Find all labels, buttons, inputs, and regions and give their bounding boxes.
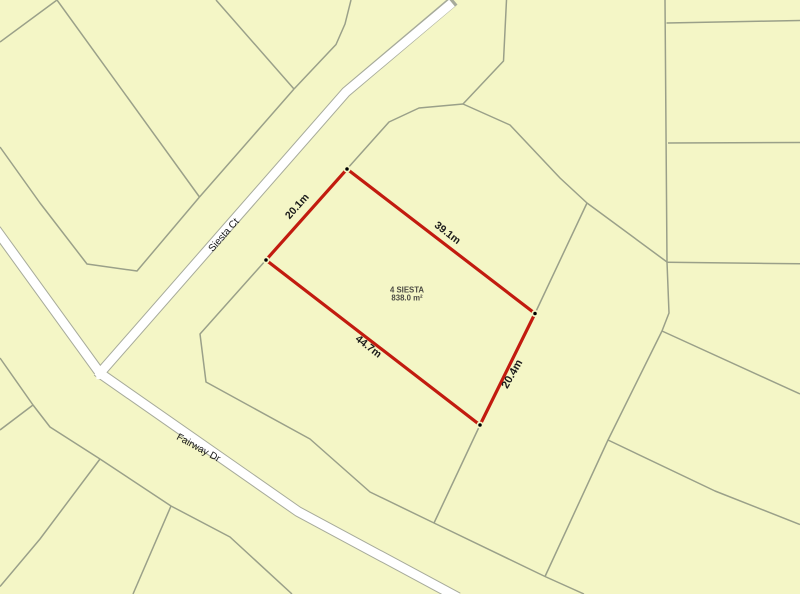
svg-text:838.0 m²: 838.0 m²	[391, 294, 423, 303]
